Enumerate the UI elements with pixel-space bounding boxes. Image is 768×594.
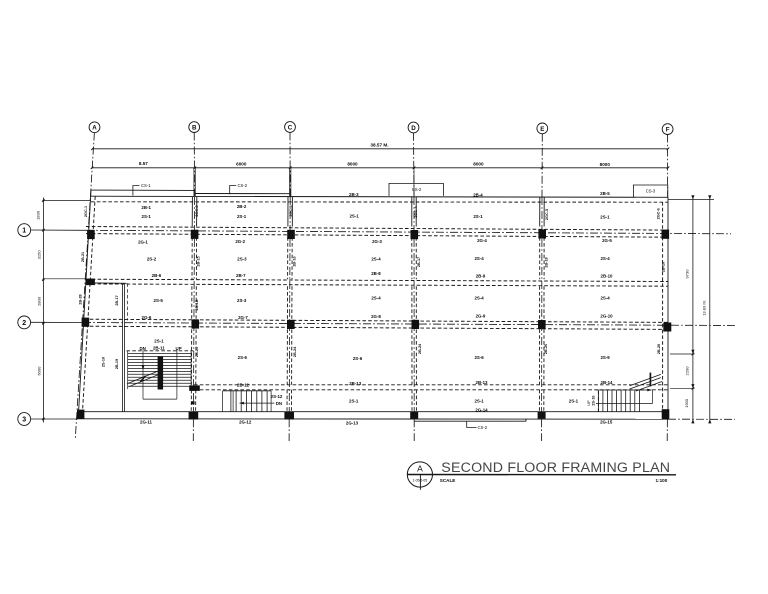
- svg-text:2S-16: 2S-16: [592, 395, 596, 405]
- svg-text:2B-20: 2B-20: [662, 262, 666, 272]
- svg-text:2GC-4: 2GC-4: [414, 206, 418, 218]
- svg-text:2S-9: 2S-9: [600, 355, 610, 360]
- svg-text:2B-24: 2B-24: [293, 346, 297, 357]
- svg-text:2G-14: 2G-14: [475, 407, 488, 412]
- svg-text:A: A: [417, 463, 423, 473]
- svg-text:2B-26: 2B-26: [544, 344, 548, 354]
- svg-text:SCALE: SCALE: [440, 478, 456, 483]
- svg-text:2GC-2: 2GC-2: [195, 205, 199, 216]
- svg-text:CS-2: CS-2: [412, 187, 422, 192]
- svg-text:2S-12: 2S-12: [271, 394, 283, 399]
- svg-text:2G-7: 2G-7: [238, 315, 248, 320]
- svg-text:CS-3: CS-3: [646, 189, 656, 194]
- svg-text:2B-6: 2B-6: [152, 273, 162, 278]
- svg-text:2G-13: 2G-13: [346, 421, 359, 426]
- svg-text:2G-15: 2G-15: [600, 420, 613, 425]
- svg-text:2S-4: 2S-4: [371, 257, 381, 262]
- svg-text:2G-6: 2G-6: [142, 315, 152, 320]
- svg-text:2S-1: 2S-1: [569, 398, 579, 403]
- svg-text:2S-1: 2S-1: [349, 214, 359, 219]
- svg-text:2B-21: 2B-21: [81, 252, 85, 262]
- svg-text:2S-10: 2S-10: [101, 357, 105, 367]
- svg-text:2GC-1: 2GC-1: [84, 206, 88, 217]
- svg-text:3: 3: [22, 417, 26, 424]
- svg-text:DN: DN: [276, 401, 282, 406]
- svg-text:2S-1: 2S-1: [237, 214, 247, 219]
- svg-text:2B-7: 2B-7: [236, 273, 246, 278]
- svg-text:9730: 9730: [685, 269, 690, 279]
- svg-text:2B-13: 2B-13: [476, 380, 489, 385]
- svg-text:2G-1: 2G-1: [138, 239, 148, 244]
- svg-text:CS-1: CS-1: [141, 183, 151, 188]
- svg-text:2B-17: 2B-17: [417, 257, 421, 267]
- svg-text:A: A: [92, 125, 97, 132]
- svg-text:2G-5: 2G-5: [602, 238, 612, 243]
- svg-text:1:100: 1:100: [656, 478, 668, 483]
- svg-text:2S-2: 2S-2: [147, 256, 157, 261]
- svg-text:8.57: 8.57: [139, 161, 148, 166]
- svg-text:2B-20: 2B-20: [657, 344, 661, 354]
- svg-text:2B-2: 2B-2: [237, 204, 247, 209]
- svg-text:2S-4: 2S-4: [600, 295, 610, 300]
- svg-text:2B-1B: 2B-1B: [195, 299, 199, 310]
- svg-text:2G-11: 2G-11: [140, 419, 153, 424]
- svg-text:D: D: [411, 125, 416, 132]
- svg-text:2B-24: 2B-24: [418, 343, 422, 354]
- svg-text:8000: 8000: [473, 162, 484, 167]
- svg-text:2GC-3: 2GC-3: [289, 205, 293, 216]
- svg-text:2GC-6: 2GC-6: [656, 208, 660, 219]
- svg-text:2S-3: 2S-3: [237, 298, 247, 303]
- svg-text:1830: 1830: [36, 210, 41, 220]
- svg-text:2S-6: 2S-6: [474, 355, 484, 360]
- svg-text:8000: 8000: [600, 162, 611, 167]
- svg-text:6000: 6000: [236, 161, 247, 166]
- svg-text:2200: 2200: [685, 366, 690, 376]
- svg-text:2G-3: 2G-3: [372, 239, 382, 244]
- svg-text:2S-1: 2S-1: [154, 338, 164, 343]
- svg-text:UP: UP: [176, 346, 182, 351]
- svg-text:2S-6: 2S-6: [238, 355, 248, 360]
- svg-text:2S-3: 2S-3: [237, 257, 247, 262]
- svg-text:F: F: [666, 127, 670, 134]
- svg-text:2S-1: 2S-1: [349, 398, 359, 403]
- svg-text:C: C: [288, 124, 293, 131]
- svg-text:2G-9: 2G-9: [476, 313, 486, 318]
- svg-text:CS-2: CS-2: [238, 183, 248, 188]
- svg-text:2B-10: 2B-10: [601, 274, 614, 279]
- svg-text:2B-14: 2B-14: [601, 380, 614, 385]
- svg-text:2S-5: 2S-5: [154, 298, 164, 303]
- svg-text:13.83 M.: 13.83 M.: [701, 300, 706, 316]
- svg-text:2B-15: 2B-15: [197, 256, 201, 266]
- svg-text:2S-1: 2S-1: [473, 214, 483, 219]
- svg-text:2800: 2800: [37, 296, 42, 306]
- svg-text:2B-9: 2B-9: [476, 274, 486, 279]
- svg-text:2B-17: 2B-17: [115, 295, 119, 305]
- svg-text:2GC-5: 2GC-5: [545, 209, 549, 220]
- svg-text:2S-1: 2S-1: [142, 214, 152, 219]
- svg-text:6000: 6000: [37, 366, 42, 376]
- svg-text:2S-1: 2S-1: [474, 398, 484, 403]
- svg-text:2G-8: 2G-8: [371, 314, 381, 319]
- svg-text:2G-10: 2G-10: [600, 313, 613, 318]
- svg-text:2S-4: 2S-4: [371, 296, 381, 301]
- svg-text:2B-19: 2B-19: [115, 359, 119, 369]
- svg-text:2B-3: 2B-3: [349, 192, 359, 197]
- svg-text:E: E: [540, 126, 544, 133]
- svg-text:SECOND FLOOR FRAMING PLAN: SECOND FLOOR FRAMING PLAN: [441, 460, 670, 476]
- svg-text:2: 2: [22, 320, 26, 327]
- svg-text:2B-12: 2B-12: [237, 383, 250, 388]
- svg-text:UP: UP: [587, 400, 591, 406]
- svg-text:2B-5: 2B-5: [600, 191, 610, 196]
- svg-text:CS-2: CS-2: [478, 425, 488, 430]
- svg-text:8000: 8000: [347, 162, 358, 167]
- svg-text:2G-12: 2G-12: [239, 419, 252, 424]
- svg-text:1-05/5-05: 1-05/5-05: [413, 479, 428, 483]
- svg-text:1900: 1900: [684, 398, 689, 408]
- svg-text:2B-8: 2B-8: [371, 271, 381, 276]
- svg-text:2G-4: 2G-4: [477, 238, 487, 243]
- svg-text:2B-25: 2B-25: [195, 347, 199, 357]
- svg-text:2B-16: 2B-16: [292, 256, 296, 266]
- svg-text:2S-4: 2S-4: [474, 295, 484, 300]
- svg-text:2B-28: 2B-28: [79, 294, 83, 304]
- svg-text:2S-6: 2S-6: [353, 356, 363, 361]
- svg-text:2S-4: 2S-4: [474, 256, 484, 261]
- svg-text:3150: 3150: [37, 250, 42, 260]
- svg-text:2B-13: 2B-13: [349, 381, 362, 386]
- svg-text:2B-4: 2B-4: [473, 192, 483, 197]
- svg-text:2B-18: 2B-18: [545, 257, 549, 267]
- svg-text:2B-1: 2B-1: [141, 205, 151, 210]
- svg-text:2S-1: 2S-1: [600, 214, 610, 219]
- svg-text:B: B: [192, 125, 197, 132]
- svg-text:1: 1: [22, 228, 26, 235]
- svg-text:2S-4: 2S-4: [600, 256, 610, 261]
- svg-text:2B-11: 2B-11: [153, 346, 165, 351]
- svg-text:38.57 M.: 38.57 M.: [370, 142, 388, 147]
- svg-text:2G-2: 2G-2: [235, 239, 245, 244]
